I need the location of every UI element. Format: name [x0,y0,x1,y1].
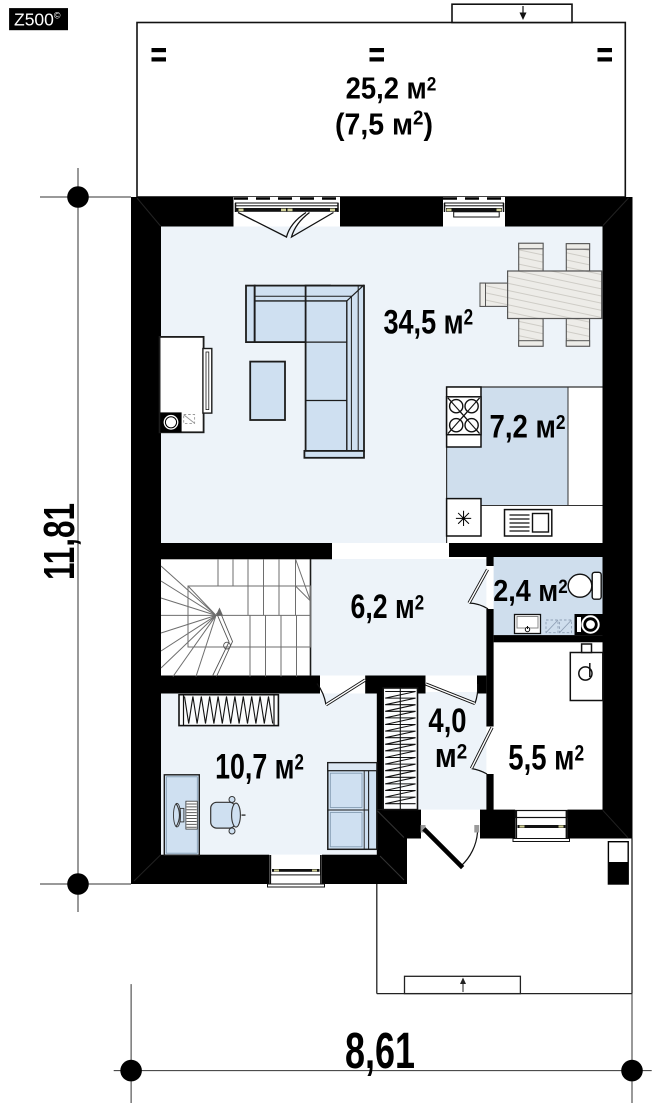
svg-text:7,2 м2: 7,2 м2 [489,410,565,446]
svg-text:34,5 м2: 34,5 м2 [383,302,473,341]
svg-text:2,4 м2: 2,4 м2 [493,575,567,609]
svg-text:6,2 м2: 6,2 м2 [350,588,424,626]
svg-text:Z500©: Z500© [14,10,61,30]
svg-text:8,61: 8,61 [345,1023,415,1080]
svg-text:25,2 м2: 25,2 м2 [346,72,437,106]
svg-text:✳: ✳ [455,508,473,531]
svg-text:4,0: 4,0 [428,701,466,740]
svg-text:5,5 м2: 5,5 м2 [508,739,584,778]
svg-text:11,81: 11,81 [36,503,84,580]
svg-text:10,7 м2: 10,7 м2 [215,747,304,786]
